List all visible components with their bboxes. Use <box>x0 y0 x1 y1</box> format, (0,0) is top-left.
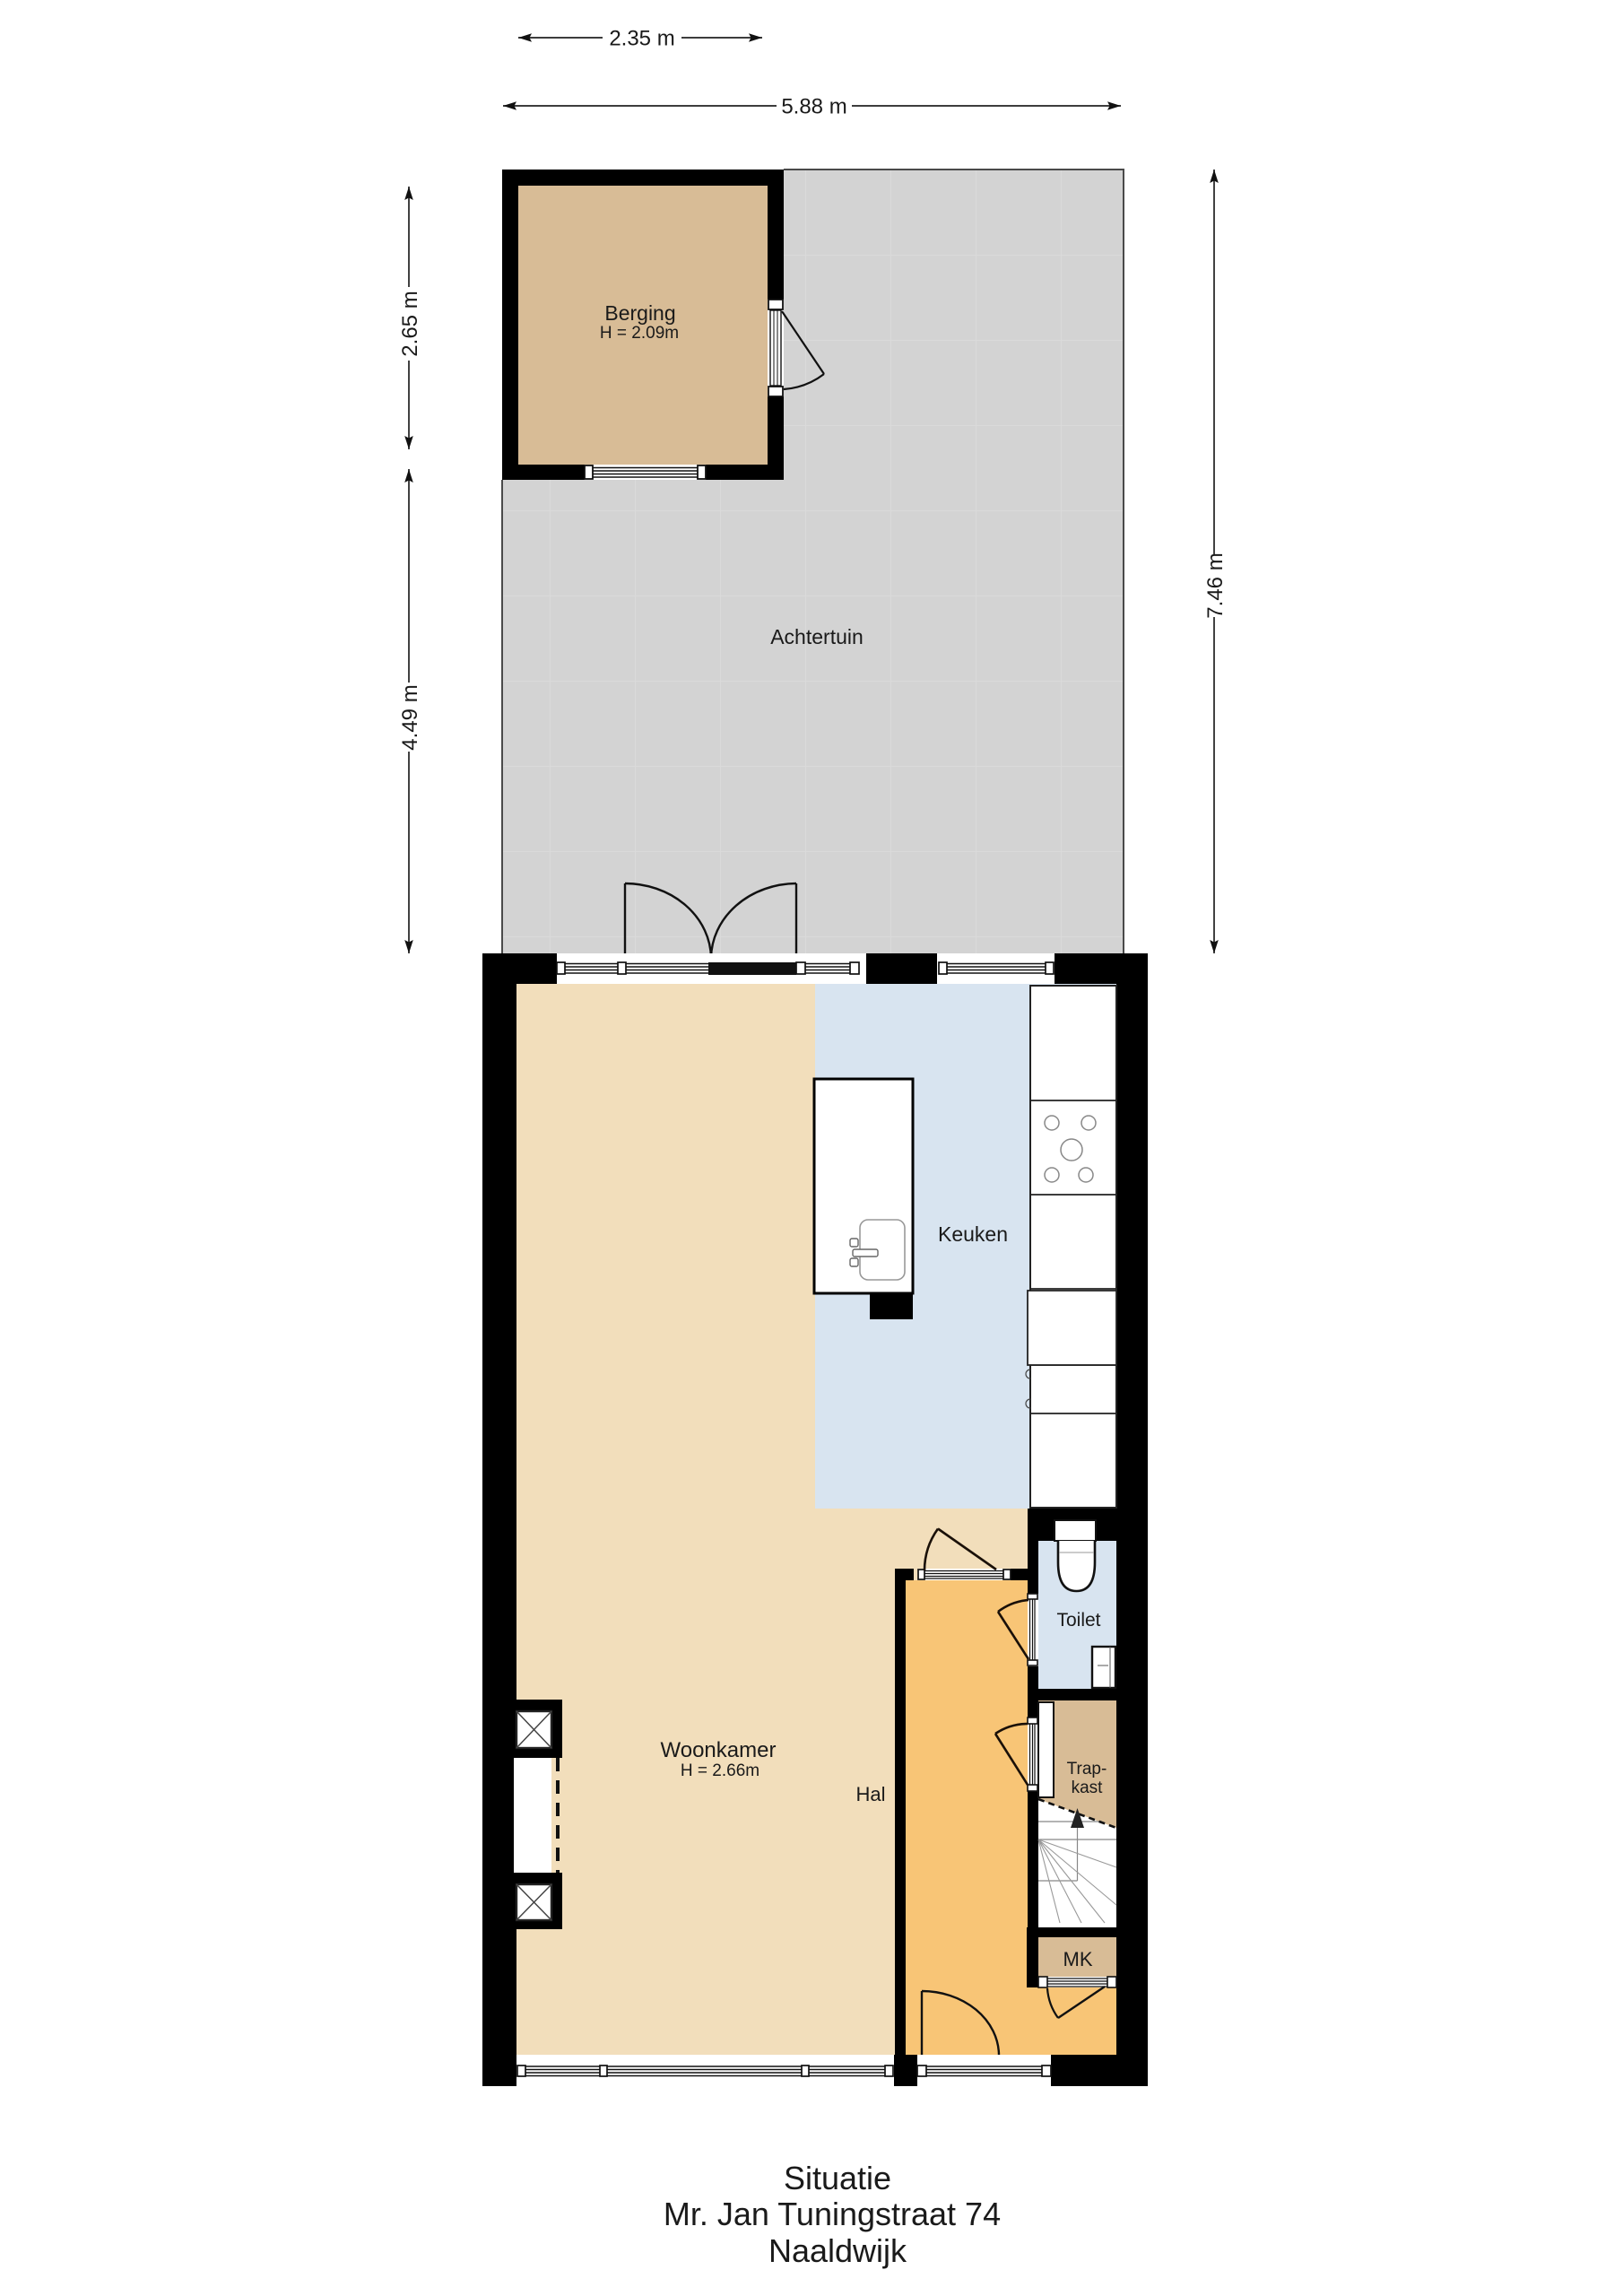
svg-text:Naaldwijk: Naaldwijk <box>768 2232 907 2269</box>
svg-text:Achtertuin: Achtertuin <box>770 625 864 648</box>
svg-text:Toilet: Toilet <box>1056 1610 1100 1631</box>
svg-text:4.49 m: 4.49 m <box>398 684 422 750</box>
svg-text:Keuken: Keuken <box>938 1222 1008 1246</box>
svg-text:H = 2.09m: H = 2.09m <box>600 324 679 343</box>
svg-text:5.88 m: 5.88 m <box>781 95 846 119</box>
svg-text:MK: MK <box>1063 1948 1093 1970</box>
svg-text:H = 2.66m: H = 2.66m <box>681 1761 759 1780</box>
svg-text:Hal: Hal <box>855 1783 885 1805</box>
svg-text:Trap-: Trap- <box>1067 1760 1107 1779</box>
svg-text:Situatie: Situatie <box>784 2160 891 2196</box>
svg-text:2.35 m: 2.35 m <box>609 27 674 51</box>
svg-text:2.65 m: 2.65 m <box>398 291 422 356</box>
svg-text:Mr. Jan Tuningstraat 74: Mr. Jan Tuningstraat 74 <box>664 2196 1001 2232</box>
svg-text:Woonkamer: Woonkamer <box>661 1738 777 1762</box>
svg-text:7.46 m: 7.46 m <box>1203 552 1228 618</box>
svg-text:kast: kast <box>1072 1779 1104 1797</box>
svg-text:Berging: Berging <box>604 301 675 325</box>
